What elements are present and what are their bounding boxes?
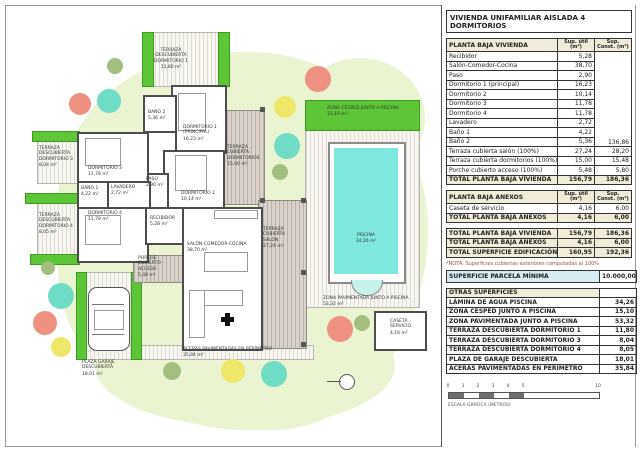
- table-row: ACERAS PAVIMENTADAS EN PERÍMETRO35,84: [447, 364, 637, 374]
- label-piscina: PISCINA34,26 m²: [350, 233, 382, 245]
- table-row: TERRAZA DESCUBIERTA DORMITORIO 48,05: [447, 345, 637, 355]
- hedge: [32, 131, 80, 142]
- kitchen-counter: [214, 210, 258, 219]
- table-row: Terraza cubierta dormitorios (100%)15,00…: [447, 156, 632, 166]
- label-plaza-garaje: PLAZA GARAJE DESCUBIERTA18,01 m²: [82, 360, 126, 377]
- pillar: [301, 270, 306, 275]
- table-row: ZONA CÉSPED JUNTO A PISCINA15,10: [447, 307, 637, 317]
- table-row: TOTAL SUPERFICIE EDIFICACIÓN160,95192,36: [447, 248, 632, 258]
- label-banyo-1: BAÑO 14,22 m²: [81, 186, 105, 198]
- tree: [97, 89, 121, 113]
- hedge: [25, 193, 80, 204]
- label-terraza-cubierta-dormitorios: TERRAZA CUBIERTA DORMITORIOS15,00 m²: [227, 145, 259, 168]
- coffee-table-icon: [225, 313, 230, 326]
- compass-icon: [339, 374, 355, 390]
- label-aceras: ACERAS PAVIMENTADAS EN PERÍMETRO35,84 m²: [183, 347, 278, 359]
- label-porche: PORCHE CUBIERTO ACCESO5,48 m²: [138, 256, 164, 279]
- pillar: [301, 342, 306, 347]
- tree: [354, 315, 370, 331]
- table-row: Porche cubierto acceso (100%)5,485,80: [447, 166, 632, 176]
- tree: [69, 93, 91, 115]
- sheet-title: VIVIENDA UNIFAMILIAR AISLADA 4 DORMITORI…: [446, 10, 632, 33]
- pillar: [301, 198, 306, 203]
- data-panel: VIVIENDA UNIFAMILIAR AISLADA 4 DORMITORI…: [441, 5, 635, 447]
- tree: [33, 311, 57, 335]
- hedge: [131, 272, 142, 360]
- car-roof: [94, 310, 124, 330]
- bed-bedroom2: [175, 155, 207, 191]
- label-terraza-descubierta-dormitorio-4: TERRAZA DESCUBIERTA DORMITORIO 48,05 m²: [39, 213, 73, 236]
- tree: [51, 337, 71, 357]
- label-terraza-descubierta-dormitorio-1: TERRAZA DESCUBIERTA DORMITORIO 111,80 m²: [150, 48, 192, 71]
- table-row: PLAZA DE GARAJE DESCUBIERTA18,01: [447, 355, 637, 365]
- pillar: [260, 107, 265, 112]
- label-lavadero: LAVADERO2,72 m²: [111, 185, 143, 197]
- label-caseta: CASETA SERVICIO4,16 m²: [390, 319, 418, 336]
- table-row: TERRAZA DESCUBIERTA DORMITORIO 38,04: [447, 336, 637, 346]
- table-header-row: PLANTA BAJA ANEXOS Sup. útil (m²) Sup. C…: [447, 191, 632, 204]
- scale-bar: 0 1 2 3 4 5 10 ESCALA GRÁFICA (METROS): [446, 384, 632, 414]
- table-total-row: TOTAL PLANTA BAJA VIVIENDA156,79186,36: [447, 175, 632, 185]
- pool-water: [334, 148, 398, 274]
- scale-bar-caption: ESCALA GRÁFICA (METROS): [448, 403, 511, 408]
- car-top-view: [88, 287, 130, 351]
- table-row: SUPERFICIE PARCELA MÍNIMA 10.000,00: [447, 270, 637, 282]
- tree: [107, 58, 123, 74]
- tree: [327, 316, 353, 342]
- label-terraza-descubierta-dormitorio-3: TERRAZA DESCUBIERTA DORMITORIO 38,04 m²: [39, 146, 73, 169]
- table-planta-baja-anexos: PLANTA BAJA ANEXOS Sup. útil (m²) Sup. C…: [446, 190, 632, 223]
- hedge: [76, 272, 87, 360]
- label-dormitorio-4: DORMITORIO 411,78 m²: [88, 211, 128, 223]
- table-row: TOTAL PLANTA BAJA VIVIENDA156,79186,36: [447, 229, 632, 239]
- label-banyo-2: BAÑO 25,36 m²: [148, 110, 172, 122]
- tree: [48, 283, 74, 309]
- table-header-row: OTRAS SUPERFICIES: [447, 288, 637, 298]
- architectural-sheet: TERRAZA DESCUBIERTA DORMITORIO 111,80 m²…: [0, 0, 640, 452]
- sofa: [189, 290, 205, 338]
- tree: [261, 361, 287, 387]
- pillar: [260, 198, 265, 203]
- label-paso: PASO2,90 m²: [146, 177, 164, 189]
- tree: [221, 359, 245, 383]
- footnote: *NOTA: Superficies cubiertas exteriores …: [446, 261, 632, 267]
- site-plan: TERRAZA DESCUBIERTA DORMITORIO 111,80 m²…: [0, 0, 441, 452]
- car-rear-window: [92, 334, 124, 335]
- table-row: Terraza cubierta salón (100%)27,2428,20: [447, 147, 632, 157]
- table-parcela-minima: SUPERFICIE PARCELA MÍNIMA 10.000,00: [446, 270, 637, 283]
- label-zona-cesped: ZONA CÉSPED JUNTO A PISCINA15,10 m²: [327, 106, 412, 118]
- tree: [272, 164, 288, 180]
- covered-terrace-living: [258, 200, 307, 349]
- scale-bar-segments: [448, 392, 600, 399]
- label-zona-pavimentada: ZONA PAVIMENTADA JUNTO A PISCINA53,32 m²: [323, 296, 415, 308]
- label-terraza-cubierta-salon: TERRAZA CUBIERTA SALÓN27,24 m²: [263, 227, 293, 250]
- table-row: TERRAZA DESCUBIERTA DORMITORIO 111,80: [447, 326, 637, 336]
- table-resumen-totales: TOTAL PLANTA BAJA VIVIENDA156,79186,36 T…: [446, 228, 632, 258]
- label-salon: SALÓN-COMEDOR-COCINA38,70 m²: [187, 242, 249, 254]
- hedge: [30, 254, 80, 265]
- tree: [163, 362, 181, 380]
- table-row: ZONA PAVIMENTADA JUNTO A PISCINA53,32: [447, 317, 637, 327]
- tree: [305, 66, 331, 92]
- table-otras-superficies: OTRAS SUPERFICIES LÁMINA DE AGUA PISCINA…: [446, 288, 637, 375]
- tree: [274, 96, 296, 118]
- label-dormitorio-2: DORMITORIO 210,14 m²: [181, 191, 221, 203]
- dining-table: [204, 252, 248, 272]
- table-row: LÁMINA DE AGUA PISCINA34,26: [447, 298, 637, 308]
- compass-line: [327, 381, 341, 382]
- label-recibidor: RECIBIDOR5,28 m²: [150, 216, 182, 228]
- label-dormitorio-1: DORMITORIO 1 (PRINCIPAL)16,23 m²: [183, 125, 217, 142]
- bed-bedroom3: [85, 138, 121, 166]
- car-windshield: [92, 304, 124, 305]
- table-header-row: PLANTA BAJA VIVIENDA Sup. útil (m²) Sup.…: [447, 39, 632, 52]
- table-row: TOTAL PLANTA BAJA ANEXOS4,166,00: [447, 238, 632, 248]
- table-planta-baja-vivienda: PLANTA BAJA VIVIENDA Sup. útil (m²) Sup.…: [446, 38, 632, 185]
- tree: [274, 133, 300, 159]
- tree: [41, 261, 55, 275]
- table-row: Recibidor5,28136,86: [447, 52, 632, 62]
- table-total-row: TOTAL PLANTA BAJA ANEXOS4,166,00: [447, 213, 632, 223]
- label-dormitorio-3: DORMITORIO 311,78 m²: [88, 166, 128, 178]
- table-row: Caseta de servicio4,166,00: [447, 204, 632, 214]
- hedge: [218, 32, 230, 87]
